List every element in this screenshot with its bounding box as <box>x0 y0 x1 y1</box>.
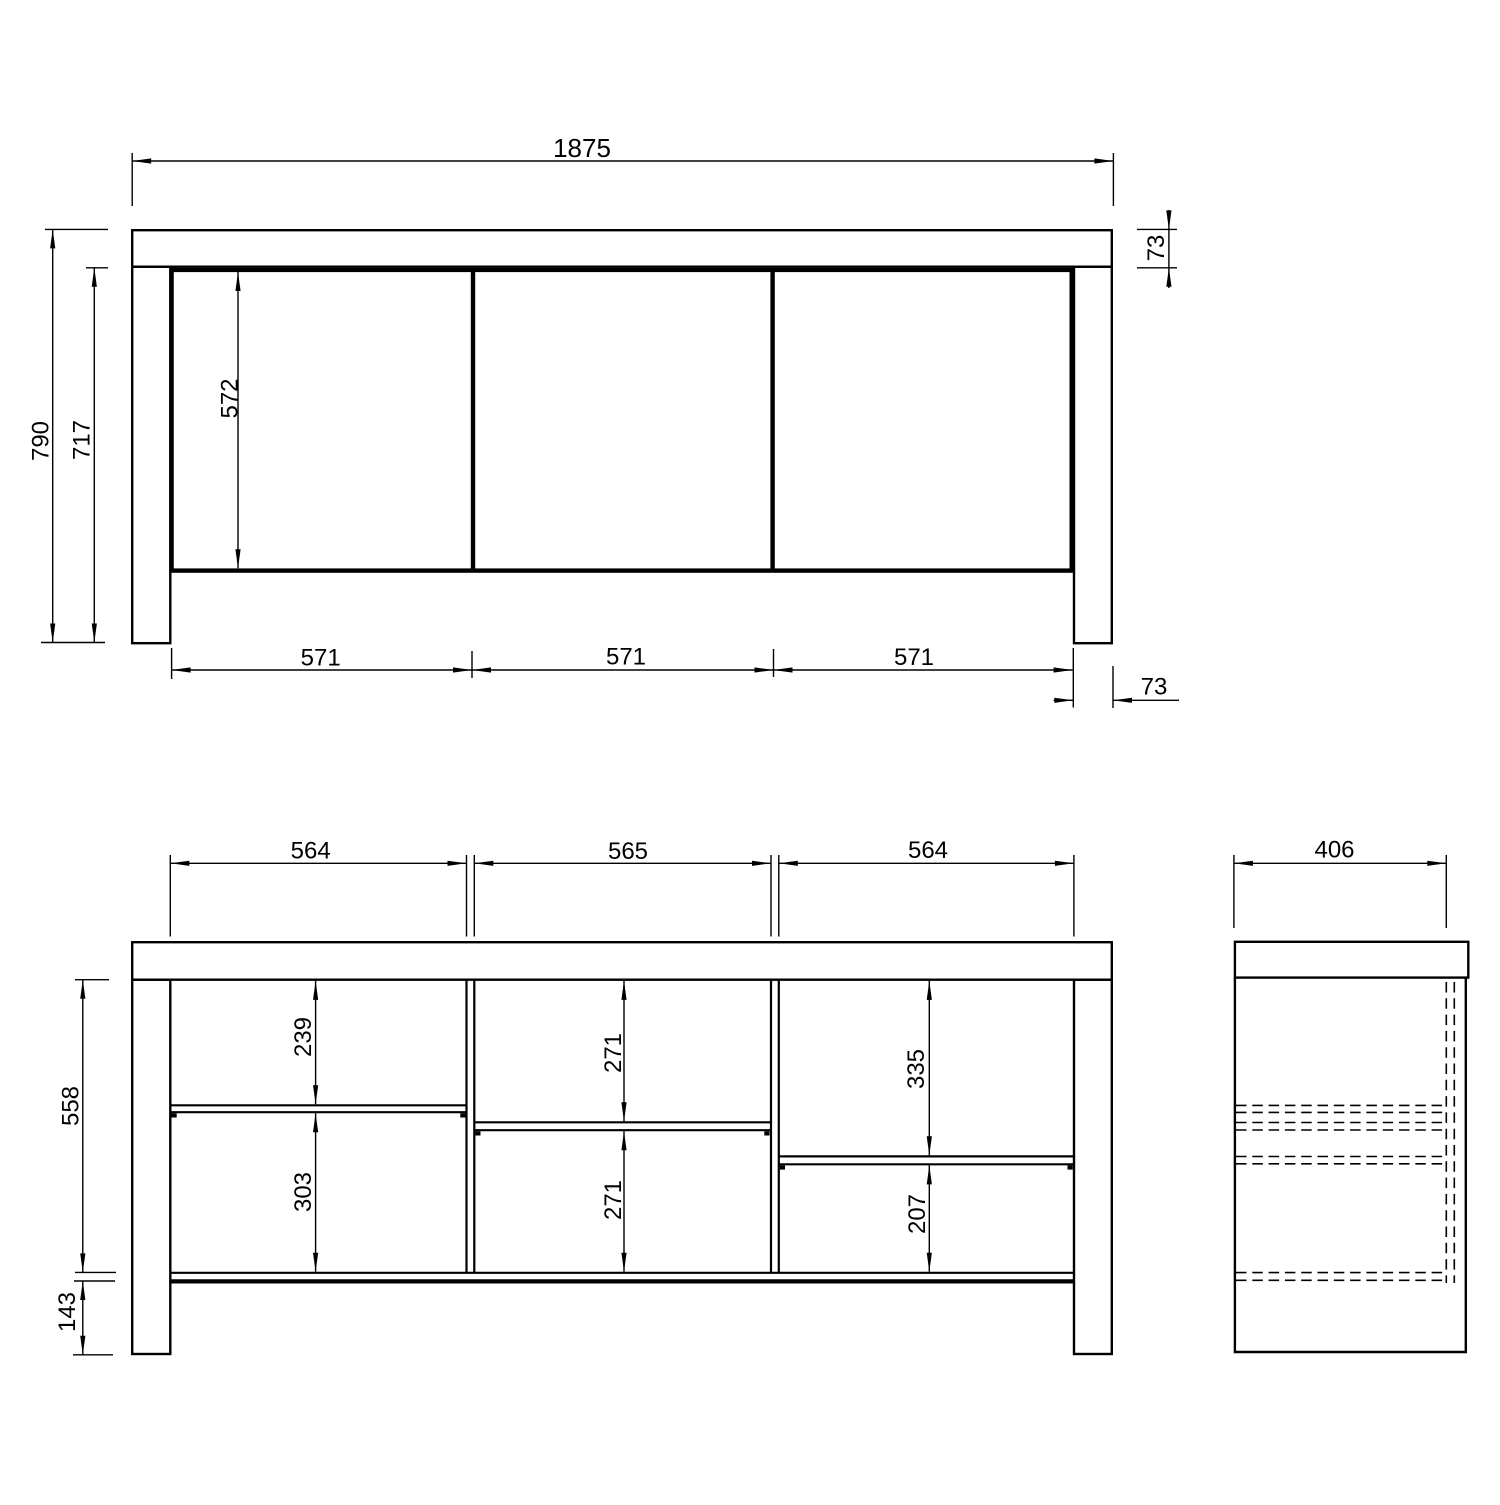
svg-text:572: 572 <box>217 378 244 418</box>
svg-text:239: 239 <box>290 1017 317 1057</box>
svg-text:564: 564 <box>291 837 331 864</box>
svg-text:207: 207 <box>904 1194 931 1234</box>
svg-text:271: 271 <box>600 1033 627 1073</box>
svg-text:335: 335 <box>903 1049 930 1089</box>
svg-text:571: 571 <box>894 644 934 671</box>
svg-text:406: 406 <box>1314 837 1354 864</box>
svg-text:73: 73 <box>1143 235 1170 262</box>
svg-text:571: 571 <box>301 645 341 672</box>
svg-text:73: 73 <box>1141 674 1168 701</box>
svg-text:565: 565 <box>608 838 648 865</box>
svg-text:717: 717 <box>69 420 96 460</box>
svg-text:1875: 1875 <box>553 133 611 163</box>
svg-text:571: 571 <box>606 644 646 671</box>
svg-text:558: 558 <box>57 1086 84 1126</box>
svg-text:790: 790 <box>27 421 54 461</box>
svg-text:303: 303 <box>290 1172 317 1212</box>
svg-text:143: 143 <box>54 1292 81 1332</box>
svg-text:271: 271 <box>600 1180 627 1220</box>
svg-text:564: 564 <box>908 837 948 864</box>
